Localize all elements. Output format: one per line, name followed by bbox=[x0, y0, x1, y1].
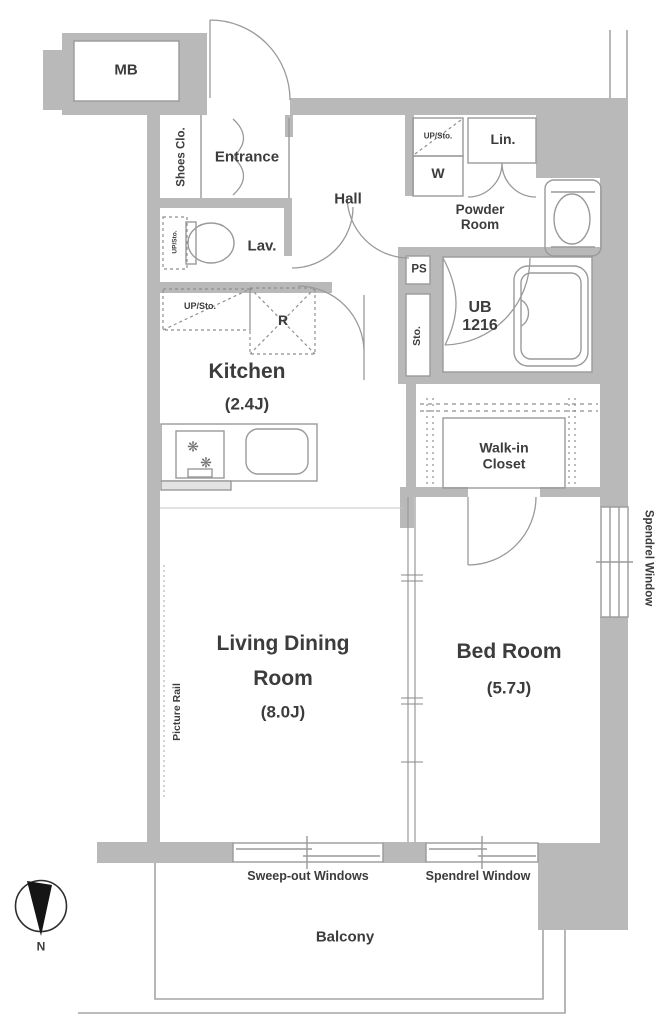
bedroom-door bbox=[468, 497, 536, 565]
entrance-door bbox=[210, 20, 290, 100]
stove-burner-icon: ❋ bbox=[187, 439, 199, 456]
hanger-pipes bbox=[420, 404, 598, 411]
entrance-label: Entrance bbox=[215, 150, 279, 167]
spendrel-window-side-label: Spendrel Window bbox=[642, 510, 655, 606]
picture-rail-label: Picture Rail bbox=[172, 683, 184, 741]
compass-north-label: N bbox=[37, 940, 46, 953]
stove-burner-icon: ❋ bbox=[200, 455, 212, 472]
walkin-closet-line2: Closet bbox=[479, 456, 528, 472]
kitchen-counter bbox=[161, 424, 317, 481]
kitchen-size-label: (2.4J) bbox=[225, 394, 269, 413]
upsto-kitchen-label: UP/Sto. bbox=[184, 301, 216, 311]
living-dining-label-line1: Living Dining bbox=[217, 632, 350, 656]
linen-label: Lin. bbox=[491, 132, 516, 148]
shoes-closet-label: Shoes Clo. bbox=[176, 127, 189, 186]
ps-label: PS bbox=[411, 264, 426, 277]
hall-label: Hall bbox=[334, 192, 362, 209]
compass-needle-icon bbox=[27, 881, 52, 936]
kitchen-label: Kitchen bbox=[208, 360, 285, 384]
powder-room-line2: Room bbox=[456, 217, 505, 232]
upsto-powder-label: UP/Sto. bbox=[424, 133, 452, 142]
lavatory-door bbox=[292, 207, 353, 268]
upsto-lav-label: UP/Sto. bbox=[171, 230, 178, 253]
powder-room-line1: Powder bbox=[456, 202, 505, 217]
hall-ldr-door bbox=[298, 286, 364, 380]
powder-room-label: Powder Room bbox=[456, 202, 505, 232]
bedroom-size-label: (5.7J) bbox=[487, 678, 531, 697]
walkin-closet-label: Walk-in Closet bbox=[479, 440, 528, 471]
walkin-closet-line1: Walk-in bbox=[479, 440, 528, 456]
washer-label: W bbox=[431, 166, 444, 182]
lavatory-label: Lav. bbox=[248, 239, 277, 256]
mb-label: MB bbox=[114, 63, 137, 80]
sink-icon bbox=[246, 429, 308, 474]
boundary-lines bbox=[610, 30, 627, 98]
sto-label: Sto. bbox=[412, 326, 424, 346]
counter-shelf bbox=[161, 481, 231, 490]
refrigerator-label: R bbox=[278, 313, 288, 329]
living-dining-size-label: (8.0J) bbox=[261, 702, 305, 721]
floor-plan: MB Shoes Clo. Entrance Hall UP/Sto. W Li… bbox=[0, 0, 661, 1024]
compass bbox=[16, 881, 67, 937]
living-dining-label-line2: Room bbox=[253, 667, 313, 691]
walls bbox=[43, 33, 628, 930]
balcony-label: Balcony bbox=[316, 930, 374, 947]
partition-wall bbox=[408, 497, 415, 842]
unit-bath-label: UB 1216 bbox=[462, 299, 498, 335]
unit-bath-line1: UB bbox=[462, 299, 498, 317]
linen-doors bbox=[468, 163, 536, 197]
unit-bath-line2: 1216 bbox=[462, 317, 498, 335]
partition-ticks bbox=[401, 575, 423, 762]
bedroom-label: Bed Room bbox=[457, 640, 562, 664]
bathtub-icon bbox=[514, 266, 588, 366]
spendrel-window-bottom-label: Spendrel Window bbox=[426, 869, 531, 883]
sweep-out-windows-label: Sweep-out Windows bbox=[247, 869, 368, 883]
toilet-icon bbox=[188, 223, 234, 263]
dashed-storage bbox=[163, 120, 598, 800]
